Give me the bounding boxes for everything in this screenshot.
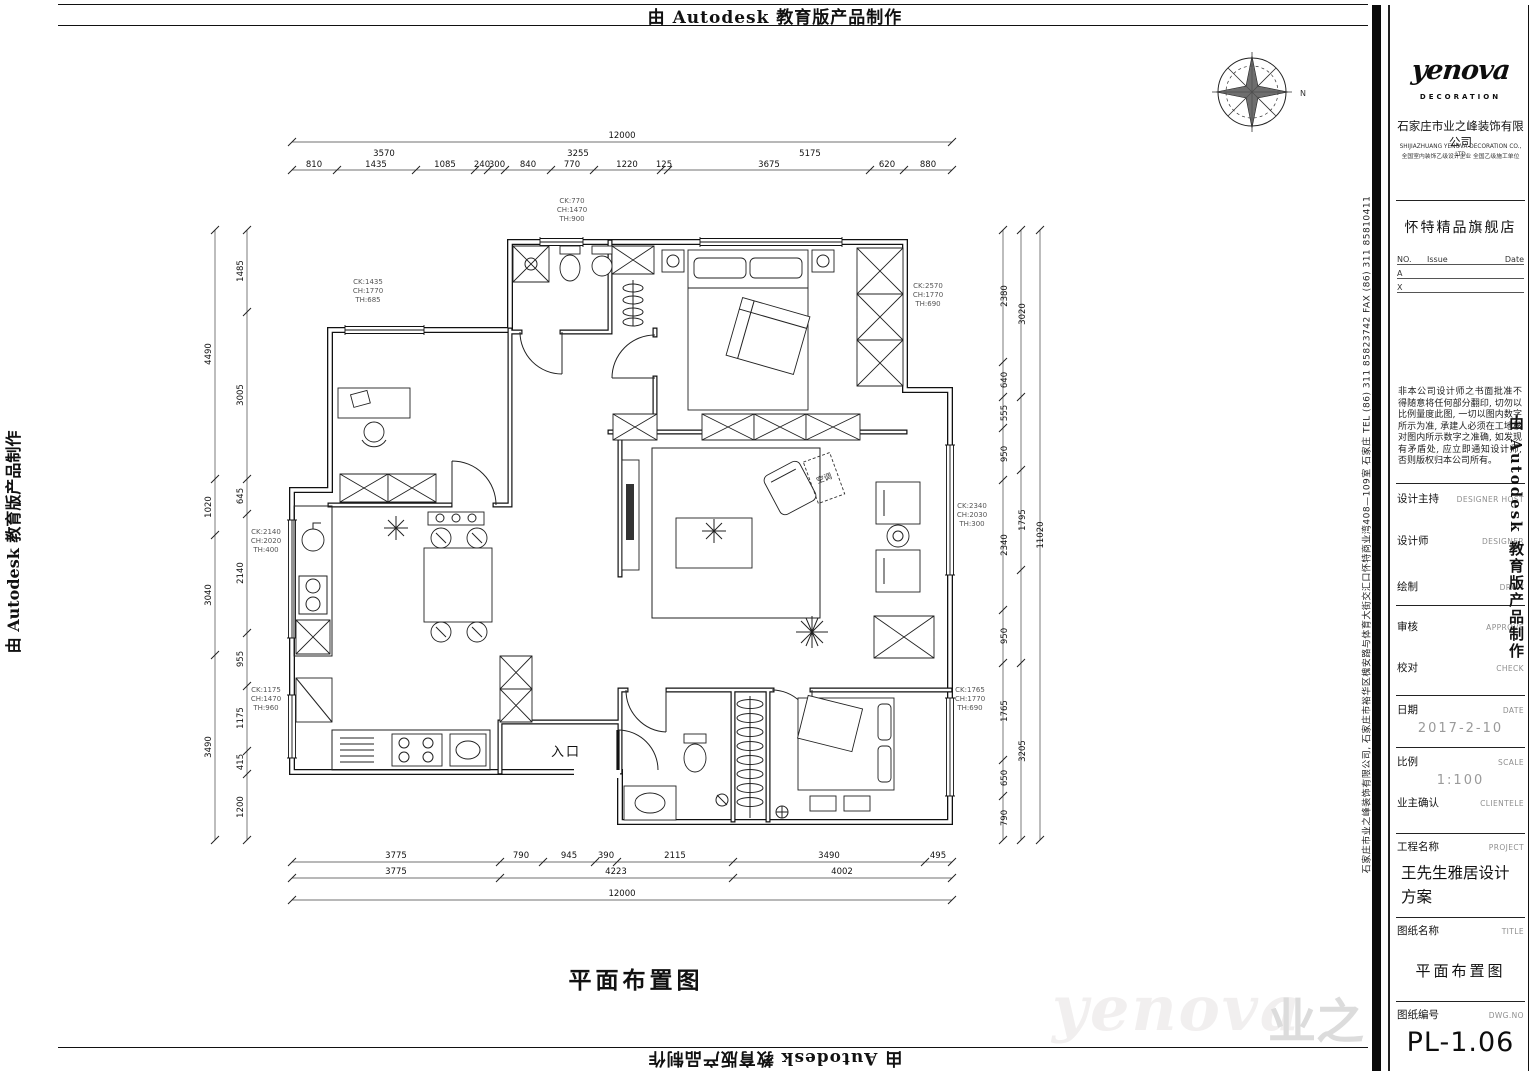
dim-value: 11020 [1036,521,1046,548]
dim-value: 790 [1000,810,1010,826]
yenova-logo-sub: DECORATION [1393,93,1528,101]
vent [340,738,374,762]
copyright-notice: 非本公司设计师之书面批准不得随意将任何部分翻印, 切勿以比例量度此图, 一切以图… [1398,387,1522,468]
dim-value: 1200 [236,796,246,818]
dim-value: 955 [236,651,246,667]
cooktop [392,734,442,766]
toilet [684,744,706,772]
round-table [887,525,909,547]
rev-row-label: A [1397,269,1427,278]
dim-value: 840 [520,160,536,170]
dim-value: 2340 [1000,534,1010,556]
dim-value: 3005 [236,384,246,406]
field-label-en: DWG.NO [1489,1011,1524,1020]
door-bath-top [520,332,562,374]
window-tag-line: CK:2140 [251,528,281,536]
window-study-top [345,324,424,336]
closet-hangers [737,696,763,818]
window-tag-line: TH:690 [956,704,982,712]
dim-value: 650 [1000,770,1010,786]
window-tag-line: CH:1770 [353,287,383,295]
field-label: 校对 [1397,660,1418,675]
entrance-label: 入口 [551,745,581,760]
dim-value: 2115 [664,851,686,861]
dim-value: 415 [236,754,246,770]
hall-closet [623,280,643,326]
dim-value: 3020 [1018,303,1028,325]
dim-value: 300 [489,160,505,170]
dim-value: 3205 [1018,740,1028,762]
dim-value: 3255 [567,149,589,159]
window-tag-line: CH:1470 [251,695,281,703]
ac-label: 空调 [815,471,833,486]
dim-value: 240 [474,160,490,170]
dim-value: 950 [1000,628,1010,644]
dim-value: 125 [656,160,672,170]
dim-value: 880 [920,160,936,170]
study-desk [338,388,410,447]
side-chair-2 [876,550,920,592]
tv [626,484,634,540]
divider [1396,200,1525,201]
dim-value: 4490 [204,343,214,365]
cabinet-xboxes [296,246,934,722]
window-tag-line: CK:2340 [957,502,987,510]
revision-row: A [1397,269,1524,279]
field-label: 日期 [1397,702,1418,717]
dim-value: 645 [236,488,246,504]
dim-value: 2380 [1000,285,1010,307]
divider [1396,917,1525,918]
store-name: 怀特精品旗舰店 [1393,217,1528,237]
dim-value: 1485 [236,260,246,282]
dim-value: 620 [879,160,895,170]
field-label: 设计师 [1397,533,1429,548]
dim-value: 3675 [758,160,780,170]
bath-bottom-fixtures [624,734,728,820]
field-label-en: PROJECT [1489,843,1524,852]
window-tag-line: TH:300 [958,520,984,528]
nightstand-right [812,250,834,272]
field-label: 绘制 [1397,579,1418,594]
dim-value: 770 [564,160,580,170]
entry-opening [574,766,620,778]
window-tag-line: CH:1470 [557,206,587,214]
dim-value: 1220 [616,160,638,170]
window-tag-line: CH:2020 [251,537,281,545]
master-bed [688,250,810,410]
dim-value: 790 [513,851,529,861]
field-label: 业主确认 [1397,795,1439,810]
floor-plant [796,616,828,648]
window-tag-line: TH:960 [252,704,278,712]
door-entry [618,730,658,770]
dim-value: 3490 [204,736,214,758]
armchair-tilted [762,459,818,517]
kitchen-sink [302,529,324,551]
dim-value: 3775 [385,867,407,877]
dim-value: 4223 [605,867,627,877]
window-tag-line: CK:1175 [251,686,281,694]
drawing-sheet: yenova 业之 由 Autodesk 教育版产品制作 由 Autodesk … [0,0,1536,1080]
dining-set [384,512,492,642]
dim-value: 1020 [204,496,214,518]
dim-value: 555 [1000,405,1010,421]
dim-value: 950 [1000,446,1010,462]
dim-value: 3775 [385,851,407,861]
window-tag-line: CK:1765 [955,686,985,694]
field-label: 图纸名称 [1397,923,1439,938]
plan-caption: 平面布置图 [569,967,704,994]
dim-value: 4002 [831,867,853,877]
door-bath-bottom [626,690,666,732]
window-tag-line: CH:2030 [957,511,987,519]
dim-value: 945 [561,851,577,861]
dim-value: 3040 [204,584,214,606]
field-label: 比例 [1397,754,1418,769]
field-label-en: TITLE [1502,927,1524,936]
dim-value: 1765 [1000,700,1010,722]
window-tag-line: CK:1435 [353,278,383,286]
field-project: 工程名称 PROJECT [1397,839,1524,854]
window-bedroom2-right [944,698,956,796]
dining-plant [384,516,408,540]
window-tag-line: CH:1770 [913,291,943,299]
dim-value: 3570 [373,149,395,159]
compass-icon: N [1212,52,1306,132]
nightstand-left [662,250,684,272]
window-tag-line: CK:2570 [913,282,943,290]
dim-value: 1175 [236,707,246,729]
autodesk-banner-right: 由 Autodesk 教育版产品制作 [1505,415,1527,785]
dim-value: 1435 [365,160,387,170]
side-chair-1 [876,482,920,524]
door-study [452,461,496,505]
dim-value: 2140 [236,562,246,584]
window-tag-line: CH:1770 [955,695,985,703]
rev-date-header: Date [1505,255,1524,264]
compass-north-label: N [1300,89,1306,98]
field-label: 图纸编号 [1397,1007,1439,1022]
rev-no-header: NO. [1397,255,1427,264]
field-label: 工程名称 [1397,839,1439,854]
dim-value: 495 [930,851,946,861]
floor-plan-canvas: 12000 3570 3255 5175 810 1435 1085 240 3… [0,0,1536,1080]
field-label: 审核 [1397,619,1418,634]
dim-value: 12000 [608,889,635,899]
window-tag-line: CK:770 [559,197,584,205]
divider [1396,1001,1525,1002]
field-sheet-title: 图纸名称 TITLE [1397,923,1524,938]
dim-value: 640 [1000,372,1010,388]
field-dwg-no: 图纸编号 DWG.NO [1397,1007,1524,1022]
project-name: 王先生雅居设计方案 [1401,861,1523,909]
door-master [612,335,655,378]
company-cert: 全国室内装饰乙级设计企业 全国乙级施工单位 [1395,153,1526,161]
dim-value: 390 [598,851,614,861]
window-tag-line: TH:685 [354,296,380,304]
dim-value: 3490 [818,851,840,861]
sheet-title-value: 平面布置图 [1393,960,1528,981]
divider [1396,833,1525,834]
window-tag-line: TH:900 [558,215,584,223]
dim-value: 5175 [799,149,821,159]
window-living-right [944,445,956,575]
field-label-en: CLIENTELE [1480,799,1524,808]
dim-value: 810 [306,160,322,170]
dim-value: 1795 [1018,509,1028,531]
field-label: 设计主持 [1397,491,1439,506]
yenova-logo: yenova [1391,55,1529,86]
dim-value: 1085 [434,160,456,170]
window-master-top [700,236,842,248]
window-tag-line: TH:690 [914,300,940,308]
window-tag-line: TH:400 [252,546,278,554]
revision-row: X [1397,283,1524,293]
revision-header: NO. Issue Date [1397,255,1524,265]
field-client: 业主确认 CLIENTELE [1397,795,1524,810]
bedroom2 [776,695,894,818]
dwg-number: PL-1.06 [1393,1027,1528,1058]
rev-row-label: X [1397,283,1427,292]
dim-value: 12000 [608,131,635,141]
rev-issue-header: Issue [1427,255,1505,264]
